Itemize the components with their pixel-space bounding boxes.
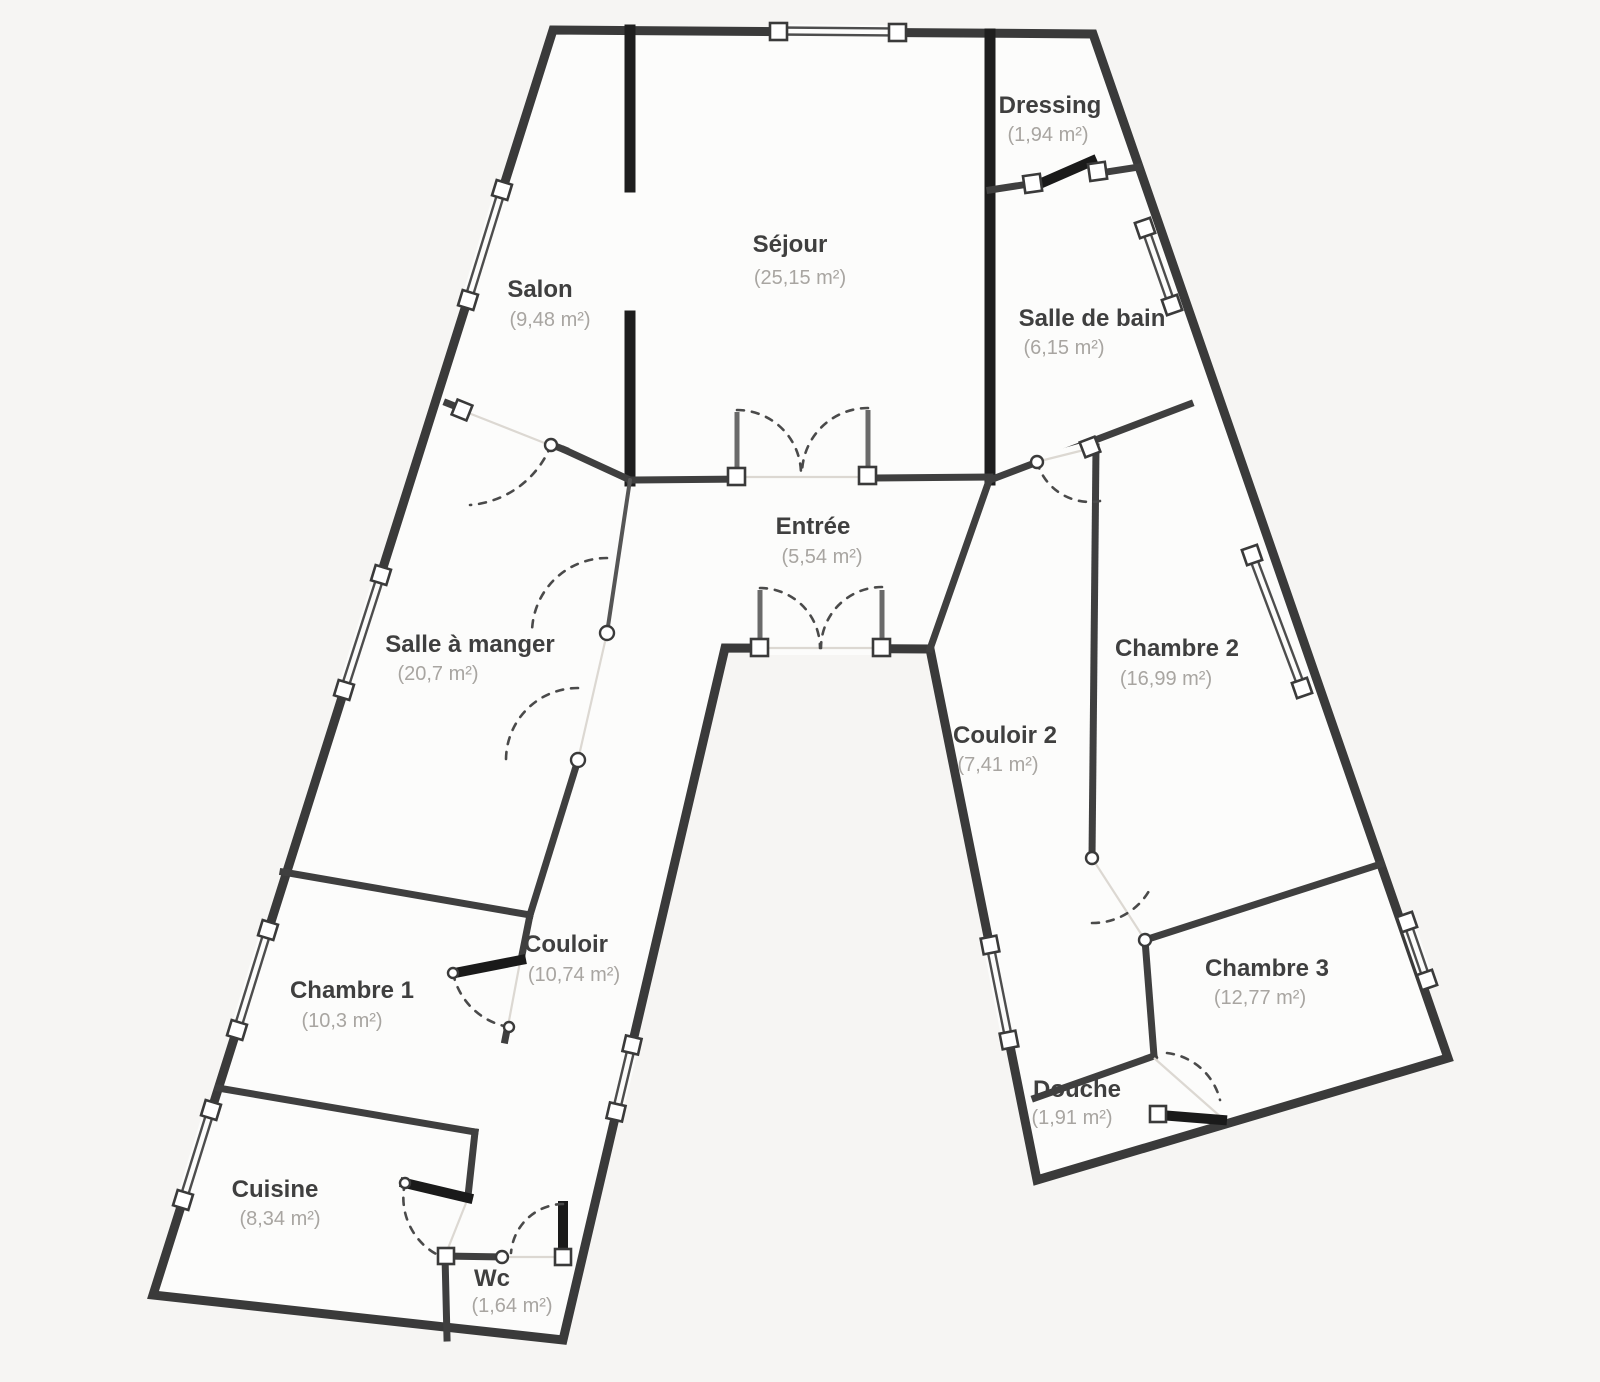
room-area: (12,77 m²) — [1214, 987, 1306, 1009]
room-name: Salle à manger — [385, 631, 554, 658]
room-name: Couloir — [524, 931, 608, 958]
room-name: Couloir 2 — [953, 722, 1057, 749]
room-area: (1,91 m²) — [1031, 1107, 1112, 1129]
room-area: (9,48 m²) — [509, 309, 590, 331]
room-label-douche: Douche (1,91 m²) — [1031, 1076, 1121, 1129]
room-name: Séjour — [753, 231, 828, 258]
room-area: (16,99 m²) — [1120, 668, 1212, 690]
room-area: (1,94 m²) — [1007, 124, 1088, 146]
room-name: Entrée — [776, 513, 851, 540]
room-area: (8,34 m²) — [239, 1208, 320, 1230]
room-name: Cuisine — [232, 1176, 319, 1203]
room-name: Chambre 2 — [1115, 635, 1239, 662]
room-name: Chambre 1 — [290, 977, 414, 1004]
room-area: (25,15 m²) — [754, 267, 846, 289]
room-area: (20,7 m²) — [397, 663, 478, 685]
floorplan-canvas: Dressing (1,94 m²) Séjour (25,15 m²) Sal… — [0, 0, 1600, 1382]
room-name: Chambre 3 — [1205, 955, 1329, 982]
room-name: Salon — [507, 276, 572, 303]
room-name: Douche — [1033, 1076, 1121, 1103]
room-name: Wc — [474, 1265, 510, 1292]
room-area: (7,41 m²) — [957, 754, 1038, 776]
room-area: (10,74 m²) — [528, 964, 620, 986]
room-name: Dressing — [999, 92, 1102, 119]
floorplan-page: Dressing (1,94 m²) Séjour (25,15 m²) Sal… — [0, 0, 1600, 1382]
room-name: Salle de bain — [1019, 305, 1166, 332]
room-area: (10,3 m²) — [301, 1010, 382, 1032]
room-area: (6,15 m²) — [1023, 337, 1104, 359]
room-area: (5,54 m²) — [781, 546, 862, 568]
room-area: (1,64 m²) — [471, 1295, 552, 1317]
